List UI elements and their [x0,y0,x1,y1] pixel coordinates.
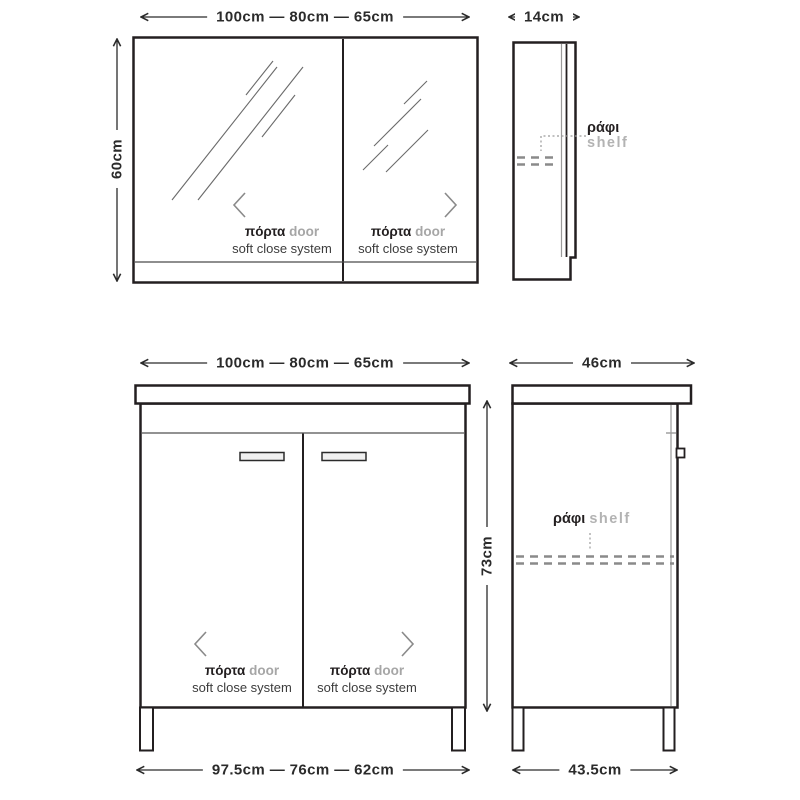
vanity-shelf-label: ράφι shelf [553,511,631,527]
vanity-right-door-label: πόρτα door soft close system [317,663,417,695]
door-hinge-detail [677,449,685,458]
vanity-height-dimension: 73cm [479,527,496,585]
door-label-subtitle: soft close system [358,241,458,256]
shelf-label-greek: ράφι [587,121,628,136]
vanity-side-left-leg [513,708,524,751]
vanity-side-right-leg [664,708,675,751]
shelf-label-english: shelf [589,511,630,527]
vanity-width-dimension: 100cm — 80cm — 65cm [207,355,403,372]
vanity-left-leg [140,708,153,751]
mirror-cabinet-side-view [514,43,587,280]
mirror-left-door-label: πόρτα door soft close system [232,224,332,256]
door-label-greek: πόρτα [245,224,286,239]
mirror-width-dimension: 100cm — 80cm — 65cm [207,9,403,26]
door-label-english: door [289,224,319,239]
vanity-cabinet-side-view [513,386,692,751]
vanity-side-countertop [513,386,692,404]
door-label-english: door [249,663,279,678]
vanity-right-leg [452,708,465,751]
vanity-depth-dimension: 46cm [573,355,631,372]
door-label-subtitle: soft close system [317,680,417,695]
vanity-base-width-dimension: 97.5cm — 76cm — 62cm [203,762,403,779]
mirror-height-dimension: 60cm [109,130,126,188]
shelf-label-greek: ράφι [553,511,585,527]
mirror-right-door-label: πόρτα door soft close system [358,224,458,256]
door-label-english: door [415,224,445,239]
right-door-handle [322,453,366,461]
vanity-countertop [136,386,470,404]
mirror-depth-dimension: 14cm [515,9,573,26]
door-label-subtitle: soft close system [232,241,332,256]
door-label-english: door [374,663,404,678]
left-door-handle [240,453,284,461]
door-label-greek: πόρτα [371,224,412,239]
vanity-cabinet-front-view [136,386,470,751]
shelf-label-english: shelf [587,136,628,151]
dimension-diagram: 100cm — 80cm — 65cm 60cm 14cm 100cm — 80… [0,0,800,800]
door-label-greek: πόρτα [330,663,371,678]
vanity-base-depth-dimension: 43.5cm [559,762,630,779]
vanity-left-door-label: πόρτα door soft close system [192,663,292,695]
door-label-greek: πόρτα [205,663,246,678]
door-label-subtitle: soft close system [192,680,292,695]
mirror-shelf-label: ράφι shelf [587,121,628,151]
